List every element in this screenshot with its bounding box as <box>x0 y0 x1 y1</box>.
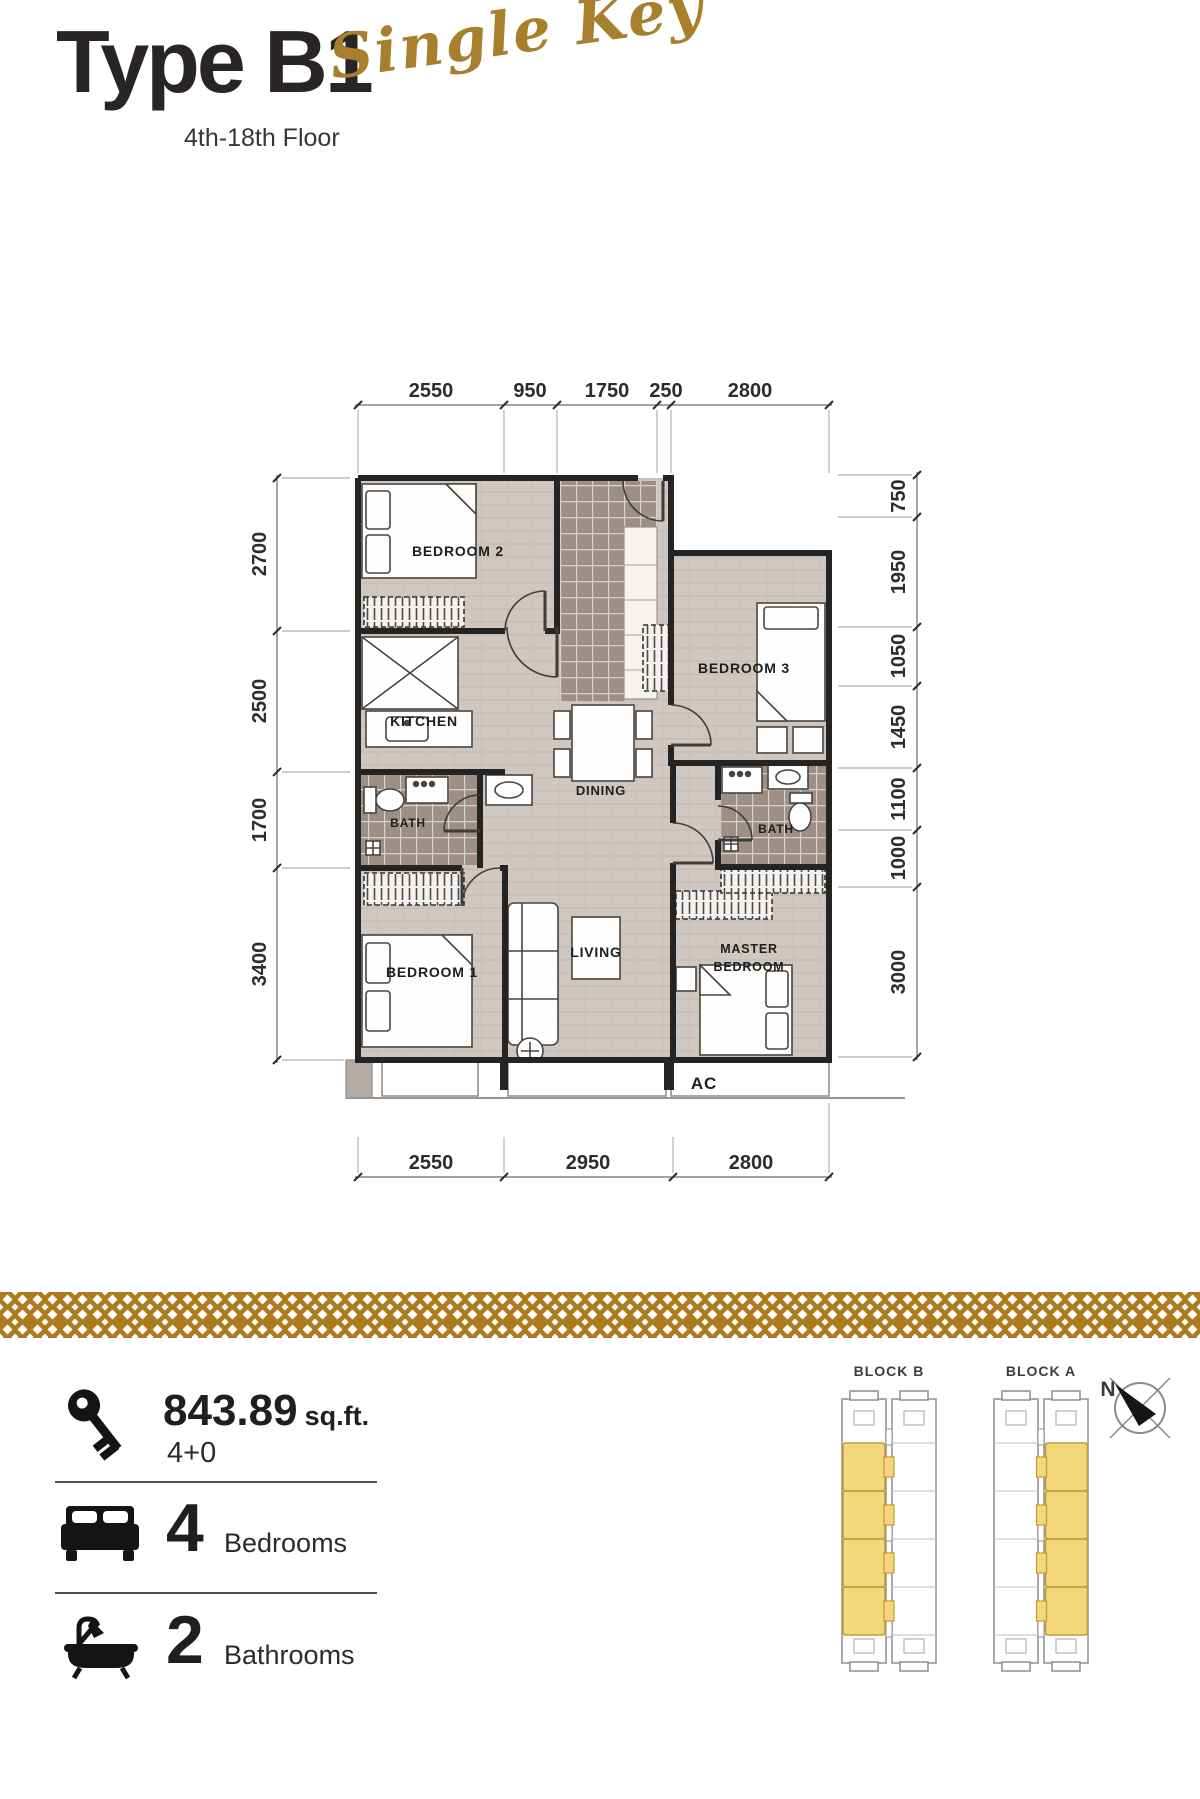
room-label-ac: AC <box>691 1074 717 1093</box>
single-key-script: Single Key <box>325 0 708 94</box>
compass-icon: N <box>1100 1378 1170 1438</box>
block-b-diagram <box>842 1391 936 1671</box>
room-label-bedroom2: BEDROOM 2 <box>412 543 504 559</box>
divider-1 <box>55 1481 377 1483</box>
key-icon <box>58 1384 138 1471</box>
gold-pattern-band <box>0 1292 1200 1338</box>
dim-top-0: 2550 <box>409 380 454 402</box>
dim-top-3: 250 <box>649 380 682 402</box>
room-label-dining: DINING <box>576 783 626 798</box>
floor-plan: BEDROOM 2 KITCHEN DINING BEDROOM 3 BATH … <box>240 355 950 1195</box>
block-a-diagram <box>994 1391 1088 1671</box>
dim-right-0: 750 <box>888 479 910 512</box>
page-title: Type B1 <box>56 14 371 111</box>
key-plan: BLOCK B BLOCK A N <box>815 1356 1195 1706</box>
area-unit: sq.ft. <box>305 1401 370 1431</box>
dim-left-0: 2700 <box>249 532 271 577</box>
room-label-bath-right: BATH <box>758 822 794 836</box>
area-config: 4+0 <box>167 1437 216 1470</box>
dim-bottom-0: 2550 <box>409 1152 454 1174</box>
bathtub-icon <box>64 1614 140 1685</box>
bedroom2-bed <box>362 484 476 578</box>
dim-right-3: 1450 <box>888 705 910 750</box>
dim-left-2: 1700 <box>249 798 271 843</box>
dim-top-1: 950 <box>513 380 546 402</box>
bathrooms-count: 2 <box>166 1606 204 1674</box>
flyer-page: Type B1 4th-18th Floor Single Key <box>0 0 1200 1799</box>
divider-2 <box>55 1592 377 1594</box>
dim-right-4: 1100 <box>888 777 910 820</box>
block-b-label: BLOCK B <box>854 1363 925 1379</box>
dim-left-3: 3400 <box>249 942 271 987</box>
dim-top-4: 2800 <box>728 380 773 402</box>
block-a-label: BLOCK A <box>1006 1363 1076 1379</box>
dim-right-5: 1000 <box>888 836 910 881</box>
kitchen-fixtures <box>362 637 472 747</box>
compass-n-label: N <box>1100 1378 1115 1401</box>
dim-right-1: 1950 <box>888 550 910 595</box>
dim-right-2: 1050 <box>888 634 910 679</box>
room-label-living: LIVING <box>570 944 621 960</box>
bedroom1-bed <box>362 935 472 1047</box>
floor-range-subtitle: 4th-18th Floor <box>184 124 340 153</box>
dim-left-1: 2500 <box>249 679 271 724</box>
area-value: 843.89sq.ft. <box>163 1386 369 1436</box>
room-label-bath-left: BATH <box>390 816 426 830</box>
room-label-bedroom1: BEDROOM 1 <box>386 964 478 980</box>
hall-basin <box>486 775 532 805</box>
room-label-kitchen: KITCHEN <box>390 713 458 729</box>
dim-top-2: 1750 <box>585 380 630 402</box>
room-label-master-2: BEDROOM <box>714 960 785 974</box>
bathrooms-label: Bathrooms <box>224 1640 355 1671</box>
dim-bottom-2: 2800 <box>729 1152 774 1174</box>
area-number: 843.89 <box>163 1386 298 1435</box>
balconies <box>346 1060 905 1098</box>
bedrooms-label: Bedrooms <box>224 1528 347 1559</box>
dim-right-6: 3000 <box>888 950 910 995</box>
dim-bottom-1: 2950 <box>566 1152 611 1174</box>
room-label-master-1: MASTER <box>720 942 778 956</box>
room-label-bedroom3: BEDROOM 3 <box>698 660 790 676</box>
bed-icon <box>60 1504 140 1569</box>
bedrooms-count: 4 <box>166 1494 204 1562</box>
